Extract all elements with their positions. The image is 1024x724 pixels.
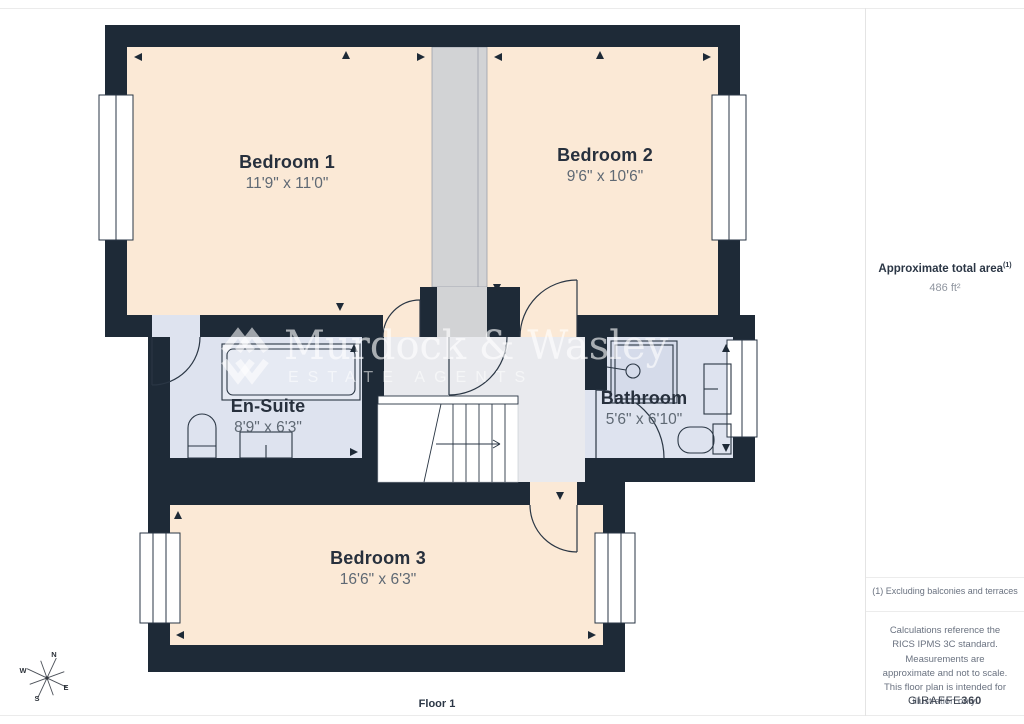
wall-bathroom-bottom [585, 458, 755, 482]
compass-south: S [34, 694, 39, 703]
wall-top [105, 25, 740, 47]
wall-stair-stub-right [487, 287, 520, 337]
sidebar-rule-1 [866, 577, 1024, 578]
brand-suffix: 360 [961, 695, 982, 707]
stairs [378, 396, 518, 482]
brand-name: GIRAFFE [908, 695, 961, 707]
bathroom-name: Bathroom [601, 388, 688, 409]
brand-logo: GIRAFFE360 [866, 695, 1024, 707]
total-area-superscript: (1) [1003, 262, 1012, 269]
floorplan-drawing [0, 0, 865, 724]
window-bedroom3-right [595, 533, 635, 623]
compass-west: W [19, 666, 27, 675]
wall-bedroom3-bottom [148, 645, 625, 672]
compass-north: N [51, 650, 56, 659]
wall-mid-c [577, 315, 755, 337]
label-bedroom3: Bedroom 3 16'6" x 6'3" [330, 548, 426, 589]
wall-ensuite-bottom [148, 458, 384, 482]
compass-rose-icon: N W E S [8, 640, 98, 720]
label-bathroom: Bathroom 5'6" x 6'10" [601, 388, 688, 429]
window-bedroom1-left [99, 95, 133, 240]
wall-mid-a [105, 315, 152, 337]
wall-bathroom-left [585, 337, 607, 390]
bedroom2-floor [487, 47, 718, 337]
window-bedroom3-left [140, 533, 180, 623]
sidebar-rule-2 [866, 611, 1024, 612]
stairwell-strip [432, 47, 487, 287]
label-bedroom1: Bedroom 1 11'9" x 11'0" [239, 152, 335, 193]
wall-ensuite-left [148, 337, 170, 458]
total-area-title: Approximate total area(1) [866, 262, 1024, 275]
total-area-block: Approximate total area(1) 486 ft² [866, 262, 1024, 294]
stairs-area [378, 404, 518, 482]
wall-bedroom3-top-right [577, 482, 625, 505]
bedroom2-dims: 9'6" x 10'6" [557, 168, 653, 186]
total-area-value: 486 ft² [866, 282, 1024, 294]
floor-label: Floor 1 [419, 698, 456, 710]
window-bedroom2-right [712, 95, 746, 240]
bedroom3-dims: 16'6" x 6'3" [330, 571, 426, 589]
stairs-handrail [378, 396, 518, 404]
bathroom-dims: 5'6" x 6'10" [601, 411, 688, 429]
label-ensuite: En-Suite 8'9" x 6'3" [231, 396, 306, 437]
ensuite-name: En-Suite [231, 396, 306, 417]
sidebar: Approximate total area(1) 486 ft² (1) Ex… [866, 0, 1024, 724]
stairwell-void [432, 47, 487, 337]
bedroom3-name: Bedroom 3 [330, 548, 426, 569]
stairwell-landing-square [437, 287, 487, 337]
total-area-title-text: Approximate total area [878, 263, 1003, 275]
footnote: (1) Excluding balconies and terraces [866, 586, 1024, 596]
bedroom1-name: Bedroom 1 [239, 152, 335, 173]
wall-mid-b [200, 315, 383, 337]
ensuite-dims: 8'9" x 6'3" [231, 419, 306, 437]
label-bedroom2: Bedroom 2 9'6" x 10'6" [557, 145, 653, 186]
wall-stair-stub-left [420, 287, 437, 337]
compass-east: E [63, 683, 68, 692]
bathtub [222, 344, 360, 400]
bedroom2-name: Bedroom 2 [557, 145, 653, 166]
bedroom1-dims: 11'9" x 11'0" [239, 175, 335, 193]
wall-bedroom3-top-left [148, 482, 530, 505]
floorplan-page: Bedroom 1 11'9" x 11'0" Bedroom 2 9'6" x… [0, 0, 1024, 724]
